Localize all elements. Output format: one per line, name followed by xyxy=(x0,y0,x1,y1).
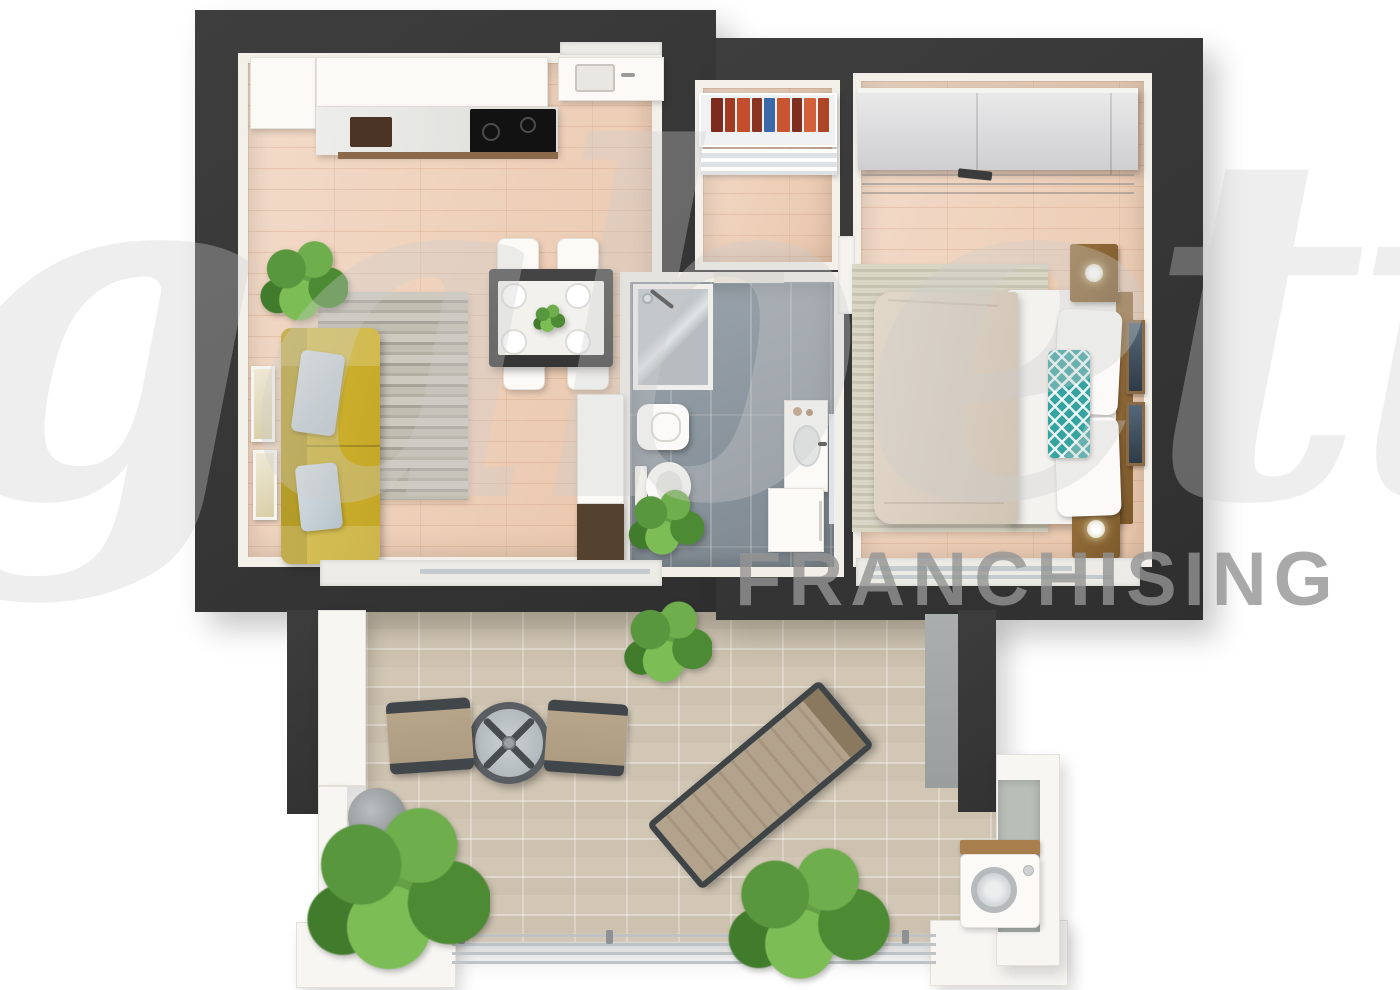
place-setting-plate xyxy=(501,329,527,355)
bedroom-wall-art xyxy=(1126,402,1145,466)
living-terrace-window xyxy=(320,560,662,586)
hall-bookshelf xyxy=(699,93,837,147)
soap-dish xyxy=(793,407,802,416)
burner xyxy=(520,117,536,133)
wardrobe xyxy=(858,88,1138,170)
bedroom-wall-art xyxy=(1126,320,1145,394)
wardrobe-seam xyxy=(1110,93,1112,175)
railing-post xyxy=(606,930,613,944)
vanity-faucet xyxy=(818,442,827,446)
nightstand xyxy=(1070,244,1118,302)
sofa-cushion-seam xyxy=(307,445,380,447)
wall-art-frame xyxy=(253,450,277,520)
bathroom-vanity xyxy=(784,400,828,492)
terrace-plant-bottom-right xyxy=(726,842,890,990)
teal-accent-pillow xyxy=(1048,350,1090,458)
sofa-armrest-bottom xyxy=(281,526,380,564)
kitchen-upper-cabinet xyxy=(316,57,548,107)
dining-table xyxy=(489,269,613,367)
window-glass xyxy=(420,569,650,574)
bed-duvet xyxy=(874,292,1018,524)
book-spine xyxy=(737,98,750,132)
terrace-chair xyxy=(544,699,629,776)
cooktop xyxy=(470,109,556,153)
vanity-basin xyxy=(793,425,821,467)
kitchen-sink-unit xyxy=(558,57,664,101)
sideboard xyxy=(577,394,624,504)
hall-shoe-rack xyxy=(701,149,837,175)
book-spine xyxy=(777,98,790,132)
place-setting-plate xyxy=(565,283,591,309)
shower xyxy=(633,284,713,390)
living-room-plant xyxy=(260,236,348,330)
wall-art-frame xyxy=(251,366,275,442)
book-spine xyxy=(711,98,723,132)
book-spine xyxy=(764,98,775,132)
kitchen-worktop xyxy=(316,107,558,155)
terrace-wall-dark-right xyxy=(958,610,996,812)
washing-machine xyxy=(960,854,1040,928)
cabinet-handle xyxy=(819,501,822,541)
alcove-shelf xyxy=(960,840,1040,854)
cutting-board xyxy=(350,117,392,147)
sofa-pillow xyxy=(295,462,344,532)
book-spine xyxy=(725,98,735,132)
bidet xyxy=(637,404,689,450)
window-glass xyxy=(872,566,1072,571)
washer-dial xyxy=(1023,865,1034,876)
terrace-plant-bottom-left xyxy=(306,798,490,988)
fridge-tall-unit xyxy=(250,57,316,129)
bathroom-cabinet xyxy=(768,488,824,552)
burner xyxy=(482,123,500,141)
bathroom-door-opening xyxy=(714,272,784,283)
terrace-chair xyxy=(386,697,475,775)
sink-basin xyxy=(575,64,615,92)
book-spine xyxy=(804,98,816,132)
kitchen-window xyxy=(560,42,662,55)
table-centerpiece-plant xyxy=(533,303,565,335)
floorplan-render: gabetti FRANCHISING xyxy=(0,0,1400,990)
nightstand-lamp xyxy=(1087,520,1105,538)
washer-drum xyxy=(971,867,1017,913)
railing-post xyxy=(902,930,909,944)
faucet xyxy=(621,73,635,77)
terrace-wall-white-left-upper xyxy=(318,610,366,786)
shower-head xyxy=(642,293,653,304)
book-spine xyxy=(752,98,762,132)
table-center-cap xyxy=(502,736,516,750)
terrace-wall-dark-left xyxy=(287,610,320,814)
kitchen-counter-lip xyxy=(338,152,558,159)
duvet-fold xyxy=(884,502,1004,504)
terrace-pillar-gray xyxy=(925,614,958,788)
bidet-basin xyxy=(651,412,681,442)
wardrobe-clothes-rail xyxy=(862,174,1134,196)
book-spine xyxy=(792,98,802,132)
bedroom-window xyxy=(856,558,1140,586)
sideboard-base-dark xyxy=(577,504,624,562)
window-glass xyxy=(872,575,1112,579)
place-setting-plate xyxy=(501,283,527,309)
duvet-fold xyxy=(888,299,998,307)
bathroom-plant xyxy=(628,486,704,562)
soap-dish xyxy=(806,409,813,416)
wardrobe-seam xyxy=(976,93,978,175)
terrace-table xyxy=(468,702,550,784)
book-spine xyxy=(818,98,829,132)
place-setting-plate xyxy=(565,329,591,355)
terrace-plant-top xyxy=(624,596,712,692)
towel-rail xyxy=(829,414,834,524)
shower-arm xyxy=(650,289,675,309)
nightstand-lamp xyxy=(1085,264,1103,282)
